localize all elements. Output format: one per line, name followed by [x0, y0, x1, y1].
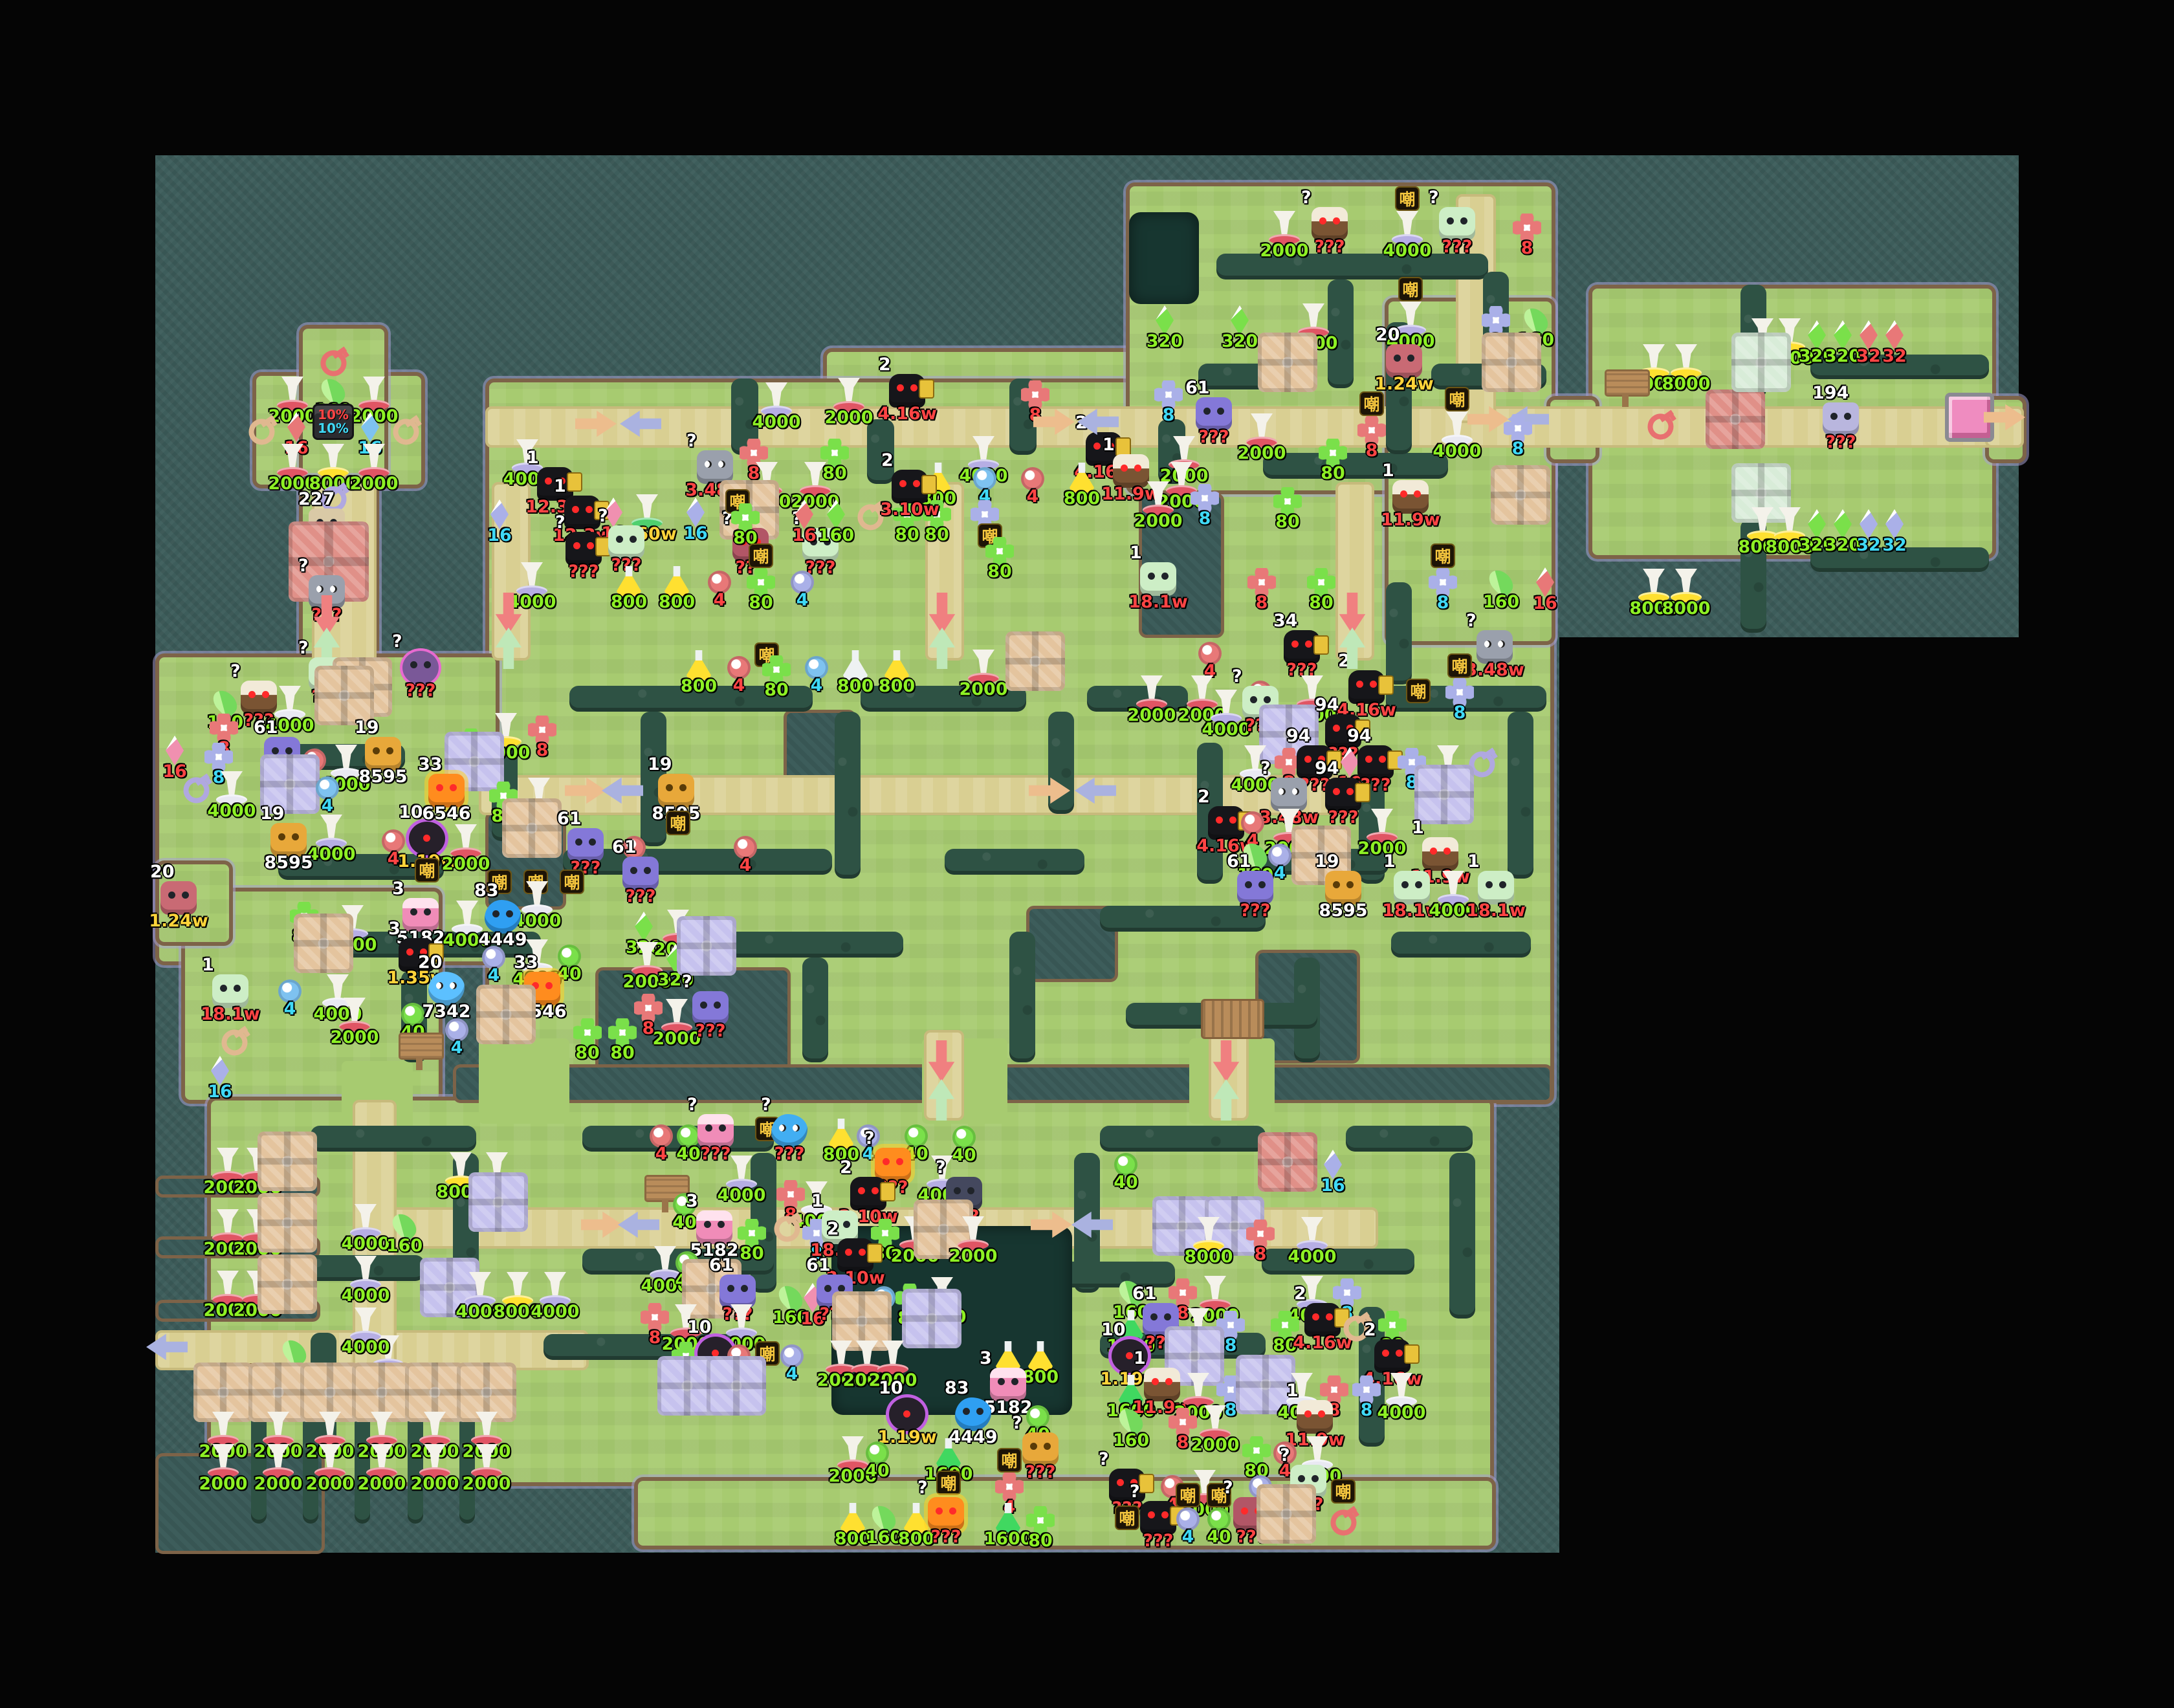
- enemy-eye: [506, 910, 513, 917]
- fountain-red[interactable]: 2000: [206, 1412, 241, 1445]
- tile-red[interactable]: [1258, 1132, 1317, 1192]
- fountain-red[interactable]: 2000: [659, 999, 694, 1033]
- golemGreen-enemy[interactable]: 118.1w: [1394, 871, 1430, 904]
- arrow-tan[interactable]: [581, 1210, 622, 1240]
- skeleton-enemy[interactable]: 111.9w: [1422, 837, 1458, 871]
- fountain-lav[interactable]: 4000: [348, 1308, 383, 1341]
- water-enemy[interactable]: 834449: [485, 900, 521, 934]
- tile-tan[interactable]: [258, 1132, 317, 1191]
- fountain-red[interactable]: 2000: [313, 1412, 347, 1445]
- arrow-blue[interactable]: [1077, 407, 1119, 437]
- clover-green[interactable]: 80: [1319, 439, 1347, 467]
- taunt-item[interactable]: 嘲: [1115, 1505, 1139, 1530]
- crystal-lav[interactable]: 32: [1860, 509, 1878, 539]
- leaf-item[interactable]: 160: [215, 689, 235, 716]
- flask-green[interactable]: 1600: [996, 1503, 1020, 1533]
- fountain-cup: [526, 881, 548, 906]
- clover-green[interactable]: 80: [1026, 1506, 1055, 1535]
- fountain-red[interactable]: 2000: [1198, 1276, 1233, 1309]
- arrow-red[interactable]: [921, 598, 963, 628]
- fountain-red[interactable]: 2000: [364, 1444, 399, 1478]
- orb-green[interactable]: 40: [677, 1124, 700, 1148]
- crystal-green[interactable]: 320: [1834, 509, 1852, 539]
- fountain-lav[interactable]: 嘲4000: [1390, 211, 1425, 245]
- fountain-yellow[interactable]: 8000: [316, 444, 351, 477]
- key-red[interactable]: 嘲: [1327, 1504, 1359, 1529]
- clover-red[interactable]: 8: [641, 1303, 669, 1331]
- fountain-lav[interactable]: 4000: [724, 1155, 759, 1189]
- golemPurple-enemy[interactable]: 61???: [1237, 871, 1273, 904]
- arrow-tan[interactable]: [1029, 776, 1070, 805]
- taunt-item[interactable]: 嘲: [1406, 679, 1431, 703]
- flask-yellow[interactable]: 800: [664, 566, 689, 596]
- orb-green[interactable]: 40: [952, 1126, 976, 1149]
- imp-enemy[interactable]: 112.3w: [564, 496, 600, 529]
- enemy-eye: [1161, 1511, 1169, 1518]
- crystal-lav[interactable]: 16: [1324, 1150, 1342, 1179]
- clover-lav[interactable]: 8: [1352, 1375, 1381, 1404]
- fountain-yellow[interactable]: 8000: [1636, 569, 1671, 602]
- crystal-green[interactable]: 320: [1834, 320, 1852, 350]
- fountain-red[interactable]: 2000: [875, 1341, 910, 1374]
- arrow-blue[interactable]: [1075, 776, 1116, 805]
- tile-tan[interactable]: [1491, 465, 1550, 525]
- skeleton-enemy-icon: [1392, 480, 1429, 514]
- clover-green[interactable]: 80: [608, 1018, 637, 1047]
- clover-lav[interactable]: 8: [1154, 380, 1183, 409]
- fountain-lav[interactable]: 4000: [514, 562, 549, 596]
- fountain-red[interactable]: 2000: [357, 377, 391, 410]
- key-lav[interactable]: [180, 771, 212, 797]
- golemGreen-enemy[interactable]: 118.1w: [212, 974, 248, 1008]
- imp-enemy[interactable]: 24.16w: [889, 374, 925, 408]
- clover-green[interactable]: 80: [573, 1018, 602, 1047]
- golemGreen-enemy[interactable]: ????: [608, 525, 644, 559]
- fountain-red[interactable]: 2000: [313, 1444, 347, 1478]
- beetle-enemy[interactable]: ????: [1022, 1432, 1059, 1466]
- crystal-red[interactable]: 32: [1860, 320, 1878, 350]
- clover-green[interactable]: 80: [985, 537, 1014, 565]
- tile-tan[interactable]: [1482, 333, 1541, 392]
- fountain-lav[interactable]: 4000: [1209, 690, 1244, 723]
- arrow-green[interactable]: [921, 1085, 962, 1115]
- orb-green[interactable]: 40: [401, 1003, 424, 1026]
- crystal-green[interactable]: 320: [635, 912, 653, 941]
- fountain-red[interactable]: 2000: [448, 824, 483, 858]
- tile-tan[interactable]: [258, 1254, 317, 1314]
- fountain-red[interactable]: 2000: [469, 1444, 504, 1478]
- leaf-item[interactable]: 160: [324, 377, 343, 404]
- fountain-white[interactable]: 4000: [214, 771, 249, 805]
- leaf-item[interactable]: 160: [285, 1339, 304, 1366]
- taunt-item[interactable]: 嘲: [560, 870, 584, 894]
- bridge-item[interactable]: [1201, 999, 1264, 1039]
- clover-lav[interactable]: 嘲8: [1445, 678, 1474, 706]
- eye-enemy[interactable]: 101.19w: [409, 822, 445, 855]
- skeletonPink-enemy[interactable]: 35182: [402, 898, 439, 932]
- monkey-enemy[interactable]: 201.24w: [1386, 344, 1422, 378]
- fountain-lav[interactable]: 4000: [348, 1256, 383, 1289]
- golemPurple-enemy[interactable]: 61???: [622, 857, 659, 890]
- clover-red[interactable]: 嘲4: [995, 1473, 1024, 1501]
- arrow-blue[interactable]: [602, 776, 643, 805]
- fountain-lav[interactable]: 4000: [1295, 1217, 1330, 1251]
- skeletonPink-enemy[interactable]: ????: [697, 1114, 734, 1148]
- imp-enemy[interactable]: 24.16w: [1208, 806, 1244, 840]
- fountain-red[interactable]: 2000: [275, 444, 310, 477]
- golemGreen-enemy[interactable]: 118.1w: [1478, 871, 1514, 904]
- fountain-lav[interactable]: 4000: [759, 382, 794, 416]
- skeleton-enemy[interactable]: 111.9w: [1297, 1400, 1333, 1434]
- crystal-green[interactable]: 320: [1156, 305, 1174, 335]
- arrow-green[interactable]: [1205, 1085, 1247, 1115]
- fountain-lav[interactable]: 4000: [314, 815, 349, 848]
- clover-red[interactable]: 8: [634, 994, 663, 1022]
- fountain-icon: [1181, 1373, 1216, 1407]
- leaf-item[interactable]: 160: [395, 1212, 414, 1240]
- skeleton-enemy[interactable]: ????: [241, 681, 277, 714]
- fountain-red[interactable]: 2000: [831, 378, 866, 411]
- fountain-white[interactable]: 嘲4000: [1440, 411, 1475, 445]
- clover-red[interactable]: 8: [528, 716, 556, 744]
- arrow-blue[interactable]: [618, 1210, 659, 1240]
- fountain-red[interactable]: 2000: [1198, 1405, 1233, 1439]
- orb-green[interactable]: 40: [866, 1441, 889, 1465]
- clover-lav[interactable]: 8: [1504, 414, 1532, 443]
- arrow-green[interactable]: [921, 633, 963, 663]
- arrow-tan[interactable]: [575, 409, 617, 439]
- skeleton-enemy[interactable]: 111.9w: [1392, 480, 1429, 514]
- flask-green[interactable]: 1600: [936, 1438, 961, 1468]
- flask-yellow[interactable]: 800: [1028, 1341, 1053, 1371]
- fountain-red[interactable]: 2000: [469, 1412, 504, 1445]
- fountain-lav[interactable]: 4000: [966, 436, 1001, 470]
- orb-lav[interactable]: 嘲4: [1176, 1507, 1200, 1531]
- fountain-red[interactable]: 2000: [1141, 481, 1176, 515]
- tile-lav[interactable]: [902, 1289, 961, 1348]
- leaf-item[interactable]: 160: [1491, 569, 1511, 596]
- knightArmor-enemy[interactable]: 194???: [1823, 402, 1859, 436]
- beetle-enemy[interactable]: 198595: [658, 774, 694, 807]
- tile-tan[interactable]: [314, 666, 374, 725]
- fire-enemy[interactable]: 336546: [428, 774, 465, 807]
- fountain-white[interactable]: 4000: [520, 881, 554, 915]
- tile-lav[interactable]: [1414, 765, 1474, 824]
- tile-tan[interactable]: [476, 985, 536, 1044]
- clover-green[interactable]: 嘲80: [747, 568, 775, 597]
- monkey-enemy[interactable]: 201.24w: [160, 881, 197, 915]
- crystal-pink[interactable]: 16: [166, 736, 184, 765]
- imp-enemy[interactable]: 23.10w: [837, 1238, 873, 1272]
- crystal-green[interactable]: 320: [1808, 320, 1826, 350]
- crystal-lav[interactable]: 32: [1885, 509, 1904, 539]
- arrow-red[interactable]: [921, 1046, 962, 1076]
- fountain-lav[interactable]: 4000: [1436, 871, 1471, 904]
- orb-lav[interactable]: 4: [791, 571, 814, 594]
- fountain-red[interactable]: 2000: [1134, 675, 1169, 709]
- tile-lav[interactable]: [468, 1172, 528, 1232]
- fountain-cup: [1779, 507, 1801, 532]
- tile-lav[interactable]: [677, 916, 736, 976]
- clover-lav[interactable]: 8: [1191, 484, 1219, 512]
- sign-item[interactable]: [399, 1033, 440, 1070]
- key-tan[interactable]: [245, 413, 278, 439]
- imp-enemy[interactable]: 24.16w: [1304, 1303, 1341, 1337]
- tile-tan[interactable]: [1257, 1484, 1316, 1544]
- flask-yellow[interactable]: 800: [996, 1341, 1020, 1371]
- splat-enemy[interactable]: ????: [771, 1114, 807, 1148]
- value-label: 2000: [462, 1475, 511, 1493]
- clover-red[interactable]: 8: [1021, 380, 1049, 409]
- clover-red[interactable]: 8: [210, 714, 238, 742]
- fountain-red[interactable]: 2000: [261, 1412, 296, 1445]
- crystal-lav[interactable]: 16: [211, 1056, 229, 1086]
- tile-tan[interactable]: [258, 1193, 317, 1253]
- clover-red[interactable]: 8: [1246, 1220, 1275, 1248]
- orb-blue[interactable]: 4: [278, 980, 302, 1003]
- clover-lav[interactable]: 嘲8: [1429, 568, 1457, 597]
- fountain-red[interactable]: 2000: [966, 650, 1001, 683]
- golemPurple-enemy[interactable]: 61???: [1196, 397, 1232, 431]
- arrow-blue[interactable]: [620, 409, 661, 439]
- flask-white[interactable]: 800: [843, 650, 868, 680]
- clover-red[interactable]: 8: [1513, 213, 1541, 242]
- cloud-enemy[interactable]: 207342: [428, 972, 465, 1005]
- golemPurple-enemy[interactable]: 61???: [719, 1275, 756, 1308]
- flask-yellow[interactable]: 800: [829, 1119, 853, 1148]
- fire-enemy[interactable]: ????: [928, 1497, 964, 1531]
- arrow-red[interactable]: [1332, 598, 1373, 628]
- leaf-item[interactable]: 160: [1526, 307, 1546, 334]
- fountain-red[interactable]: 2000: [1244, 413, 1279, 447]
- orb-blue[interactable]: 4: [973, 467, 996, 490]
- clover-green[interactable]: 80: [1242, 1436, 1271, 1465]
- fountain-white[interactable]: 4000: [1384, 1373, 1419, 1407]
- count-label: ?: [1232, 668, 1242, 685]
- fountain-red[interactable]: 2000: [337, 998, 372, 1031]
- crystal-red[interactable]: 16: [1536, 567, 1554, 597]
- imp-enemy[interactable]: ????: [565, 532, 602, 565]
- taunt-item[interactable]: 嘲: [936, 1471, 961, 1495]
- arrow-tan[interactable]: [1984, 402, 2025, 432]
- orb-red[interactable]: 4: [727, 656, 751, 679]
- water-enemy[interactable]: 834449: [955, 1397, 991, 1431]
- imp-enemy[interactable]: 24.16w: [1374, 1339, 1411, 1373]
- arrow-red[interactable]: [306, 601, 347, 631]
- robot-enemy[interactable]: ?3.48w: [1271, 778, 1307, 811]
- orb-green[interactable]: 40: [905, 1124, 928, 1148]
- orb-lav[interactable]: 4: [780, 1344, 804, 1368]
- fountain-yellow[interactable]: 8000: [1669, 344, 1704, 378]
- arrow-red[interactable]: [488, 598, 529, 628]
- arrow-tan[interactable]: [1031, 1210, 1072, 1240]
- fountain-red[interactable]: 2000: [261, 1444, 296, 1478]
- tile-tan[interactable]: [1258, 333, 1317, 392]
- orb-red[interactable]: 4: [650, 1124, 673, 1148]
- key-tan[interactable]: [390, 413, 422, 439]
- fountain-red[interactable]: 2000: [1181, 1373, 1216, 1407]
- crystal-blue[interactable]: 16: [361, 412, 379, 442]
- fountain-red[interactable]: 2000: [956, 1216, 991, 1250]
- flask-yellow[interactable]: 800: [840, 1503, 865, 1533]
- clover-red[interactable]: 嘲8: [1357, 416, 1386, 444]
- arrow-tan[interactable]: [1033, 407, 1075, 437]
- fountain-lav[interactable]: 4000: [463, 1272, 498, 1306]
- imp-enemy[interactable]: 23.10w: [850, 1177, 886, 1210]
- crystal-red[interactable]: 32: [1885, 320, 1904, 350]
- orb-red[interactable]: 4: [734, 836, 757, 859]
- orb-blue[interactable]: 4: [805, 656, 828, 679]
- skeletonPink-enemy[interactable]: 35182: [696, 1210, 732, 1244]
- crystal-pink[interactable]: 16: [1341, 747, 1359, 777]
- imp-enemy[interactable]: 23.10w: [892, 470, 928, 503]
- orb-red[interactable]: 4: [382, 829, 405, 853]
- tile-red[interactable]: [1706, 389, 1765, 449]
- fountain-lav[interactable]: 4000: [348, 1204, 383, 1238]
- crystal-green[interactable]: 160: [827, 499, 845, 529]
- robot-enemy[interactable]: ?3.48w: [697, 450, 733, 484]
- beetle-enemy[interactable]: 198595: [270, 823, 307, 857]
- arrow-red[interactable]: [1205, 1046, 1247, 1076]
- crystal-red[interactable]: 16: [795, 499, 813, 529]
- flower-tile: [1257, 1484, 1316, 1544]
- clover-green[interactable]: 80: [731, 503, 760, 532]
- imp-enemy[interactable]: 94???: [1357, 745, 1394, 779]
- golemPurple-enemy[interactable]: 61???: [567, 828, 604, 862]
- fountain-lav[interactable]: 4000: [538, 1272, 573, 1306]
- taunt-item[interactable]: 嘲: [415, 858, 439, 882]
- key-red[interactable]: [317, 344, 349, 370]
- crystal-lav[interactable]: 16: [490, 499, 509, 529]
- fountain-red[interactable]: 2000: [364, 1412, 399, 1445]
- chest10-item[interactable]: 10%10%: [313, 404, 354, 440]
- arrow-green[interactable]: [488, 633, 529, 663]
- fountain-green[interactable]: 1.60w: [630, 494, 664, 528]
- fountain-red[interactable]: 2000: [1365, 809, 1400, 842]
- enemy-eye: [779, 1124, 786, 1132]
- fountain-lav[interactable]: 4000: [724, 1304, 759, 1338]
- orb-lav[interactable]: 4: [445, 1018, 468, 1042]
- imp-enemy[interactable]: ????: [1140, 1501, 1176, 1535]
- clover-green[interactable]: 80: [1307, 568, 1335, 597]
- fountain-yellow[interactable]: 8000: [500, 1272, 535, 1306]
- gastly-enemy[interactable]: ????: [402, 651, 439, 684]
- orb-red[interactable]: 4: [1198, 642, 1222, 665]
- orb-blue[interactable]: 4: [316, 776, 339, 800]
- orb-green[interactable]: 嘲40: [1207, 1507, 1231, 1531]
- value-label: 80: [895, 526, 919, 543]
- arrow-tan[interactable]: [565, 776, 606, 805]
- arrow-green[interactable]: [1332, 633, 1373, 663]
- fountain-icon: [261, 1412, 296, 1445]
- key-red[interactable]: [1644, 408, 1676, 433]
- enemy-eye: [423, 835, 430, 842]
- fountain-white[interactable]: 4000: [272, 686, 307, 719]
- arrow-blue[interactable]: [1071, 1210, 1113, 1240]
- clover-green[interactable]: 80: [1378, 1311, 1407, 1339]
- clover-red[interactable]: 8: [1247, 568, 1276, 597]
- flask-yellow[interactable]: 800: [904, 1503, 928, 1533]
- enemy-eye: [1430, 848, 1437, 855]
- tile-mint[interactable]: [1731, 333, 1791, 392]
- tile-tan[interactable]: [294, 914, 353, 973]
- robot-enemy[interactable]: ?3.48w: [1477, 630, 1513, 664]
- golemGreen-enemy[interactable]: 118.1w: [1140, 562, 1176, 596]
- clover-lav[interactable]: 8: [1482, 306, 1510, 334]
- leaf-item[interactable]: 160: [874, 1504, 894, 1531]
- taunt-item[interactable]: 嘲: [666, 811, 690, 835]
- fountain-red[interactable]: 2000: [206, 1444, 241, 1478]
- fountain-yellow[interactable]: 8000: [1669, 569, 1704, 602]
- arrow-blue[interactable]: [146, 1332, 188, 1362]
- sign-item[interactable]: [1605, 369, 1646, 407]
- fountain-red[interactable]: 2000: [275, 377, 310, 410]
- orb-lav[interactable]: 4: [1268, 844, 1291, 867]
- beetle-enemy[interactable]: 198595: [1325, 871, 1361, 904]
- skeletonPink-enemy[interactable]: 35182: [990, 1368, 1026, 1401]
- flask-yellow[interactable]: 800: [617, 566, 641, 596]
- golemPurple-enemy[interactable]: ????: [692, 991, 729, 1025]
- orb-green[interactable]: 40: [1114, 1153, 1137, 1176]
- tile-tan[interactable]: [502, 798, 562, 858]
- clover-lav[interactable]: 8: [204, 743, 233, 771]
- enemy-eye: [1216, 816, 1223, 824]
- power-label: ???: [1026, 1463, 1056, 1481]
- fountain-red[interactable]: 2000: [357, 444, 391, 477]
- key-tan[interactable]: [771, 1210, 803, 1236]
- imp-enemy[interactable]: 24.16w: [1348, 670, 1385, 704]
- power-label: 3.10w: [880, 501, 939, 518]
- orb-red[interactable]: 4: [1241, 811, 1264, 835]
- fountain-red[interactable]: 2000: [417, 1412, 452, 1445]
- flask-yellow[interactable]: 800: [1070, 463, 1094, 492]
- orb-lav[interactable]: 4: [482, 946, 505, 969]
- skeleton-enemy[interactable]: ????: [1312, 207, 1348, 241]
- imp-enemy[interactable]: 94???: [1325, 778, 1361, 811]
- flask-yellow[interactable]: 800: [884, 650, 909, 680]
- fountain-red[interactable]: 2000: [798, 462, 833, 496]
- orb-red[interactable]: 4: [708, 571, 731, 594]
- fountain-red[interactable]: 2000: [1267, 211, 1302, 245]
- value-label: 4000: [752, 413, 800, 431]
- flask-yellow[interactable]: 800: [686, 650, 711, 680]
- skeleton-enemy[interactable]: 111.9w: [1144, 1368, 1180, 1401]
- clover-green[interactable]: 80: [738, 1219, 766, 1247]
- orb-green[interactable]: 40: [558, 945, 581, 968]
- imp-enemy[interactable]: 34???: [1284, 630, 1320, 664]
- tile-lav[interactable]: [707, 1356, 766, 1416]
- orb-red[interactable]: 4: [1021, 467, 1044, 490]
- key-tan[interactable]: [218, 1024, 250, 1049]
- fountain-yellow[interactable]: 8000: [1191, 1217, 1226, 1251]
- beetle-enemy[interactable]: 198595: [365, 737, 401, 771]
- crystal-lav[interactable]: 16: [686, 498, 705, 527]
- leaf-item[interactable]: 160: [1121, 1407, 1141, 1434]
- orb-green[interactable]: 40: [1026, 1405, 1049, 1429]
- eye-enemy[interactable]: 101.19w: [889, 1397, 925, 1431]
- clover-red[interactable]: 8: [1169, 1408, 1197, 1436]
- leaf-item[interactable]: 160: [781, 1284, 800, 1311]
- clover-green[interactable]: 80: [1273, 487, 1302, 516]
- fountain-red[interactable]: 2000: [417, 1444, 452, 1478]
- tile-tan[interactable]: [1005, 631, 1065, 691]
- crystal-red[interactable]: 16: [287, 412, 305, 442]
- clover-green[interactable]: 80: [762, 655, 791, 684]
- crystal-green[interactable]: 320: [1231, 305, 1249, 335]
- crystal-green[interactable]: 320: [1808, 509, 1826, 539]
- golemGreen-enemy[interactable]: ????: [1439, 207, 1475, 241]
- count-label: ?: [687, 1096, 697, 1113]
